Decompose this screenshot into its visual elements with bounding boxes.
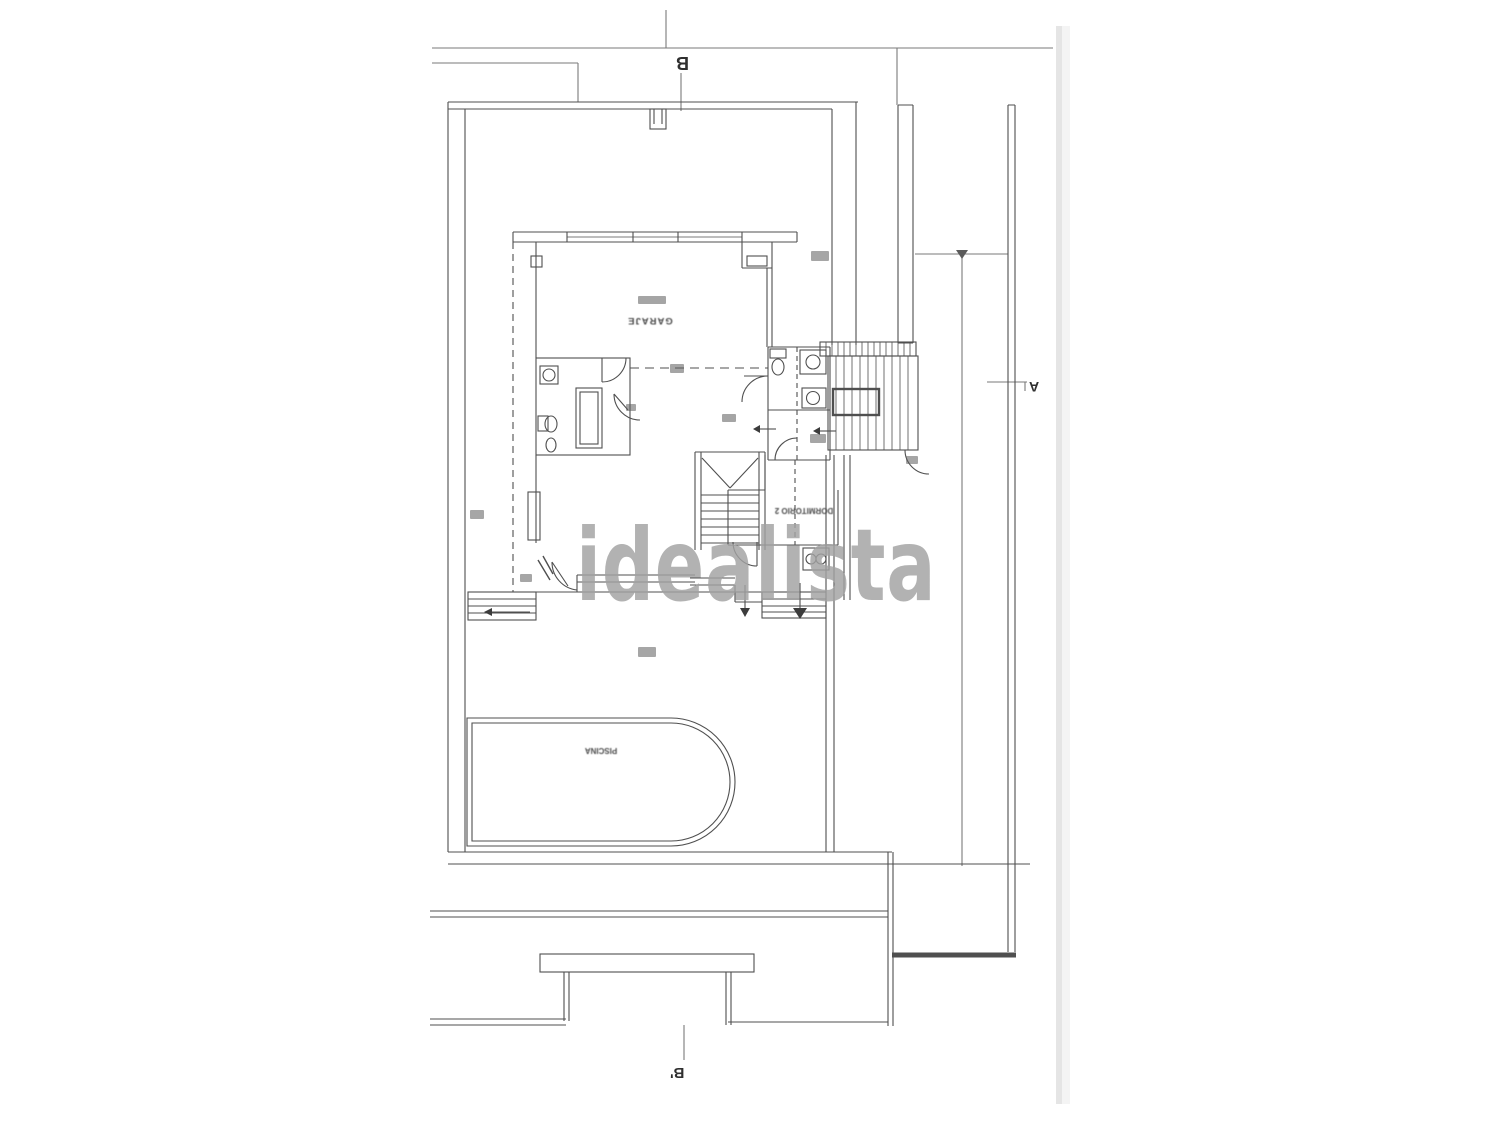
bathroom <box>536 358 640 455</box>
plot-boundary <box>432 10 1053 866</box>
room-label-garage: GARAJE <box>614 315 686 326</box>
idealista-watermark: idealista <box>576 516 936 616</box>
section-marker-b: B <box>676 52 689 73</box>
section-marker-a: A <box>1029 379 1039 395</box>
staircase-right <box>820 342 929 474</box>
pool-outline <box>467 718 735 846</box>
wc-rooms <box>742 347 836 460</box>
scanned-floorplan-page: B A B' GARAJE DORMITORIO 2 PISCINA ideal… <box>0 0 1500 1125</box>
room-label-pool: PISCINA <box>578 746 624 755</box>
section-marker-b-prime: B' <box>670 1064 684 1081</box>
scan-edge <box>1056 26 1070 1104</box>
